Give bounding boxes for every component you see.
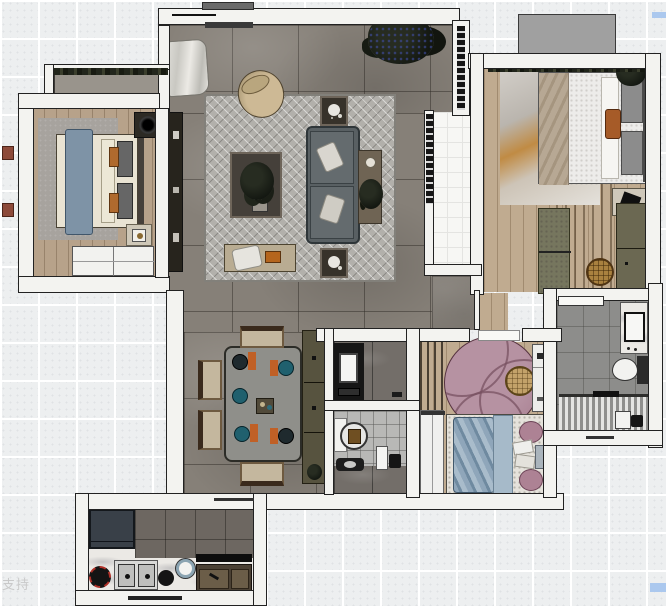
left-wall-marker-1 [2, 146, 14, 160]
highlight-bottom-right [650, 583, 666, 592]
bedroom-left-cabinet [72, 246, 154, 276]
coffee-table [230, 152, 282, 218]
side-table-bottom [320, 248, 348, 278]
bedroom-left-nightstand [126, 224, 152, 246]
wall-vestibule [474, 290, 480, 330]
mbath-shower-floor [559, 394, 648, 432]
cabinet-door [231, 569, 249, 589]
tv-console-item-1 [173, 131, 179, 139]
sink-drain [145, 574, 150, 579]
wall-bedroom-left-east [155, 108, 169, 278]
entry-door-mat [205, 22, 253, 28]
wardrobe-handle [625, 262, 628, 265]
gbath-shower-fixture [376, 442, 402, 476]
bed-left-blue-runner [65, 129, 93, 235]
dining-chair-south [240, 462, 284, 486]
side-table-flowers-top [328, 104, 340, 116]
bed-kids [446, 414, 554, 496]
wall-dining-west [166, 290, 184, 498]
napkin [270, 428, 278, 444]
dining-chair-north [240, 326, 284, 348]
shower-head [631, 415, 643, 427]
wall-bedroom-left-top [18, 93, 160, 109]
place-setting-nw [232, 352, 258, 374]
centerpiece-item [260, 402, 265, 407]
plate [234, 426, 250, 442]
wardrobe-door-line [432, 415, 433, 499]
centerpiece-item [267, 405, 272, 410]
shower-faucet-bar [593, 391, 619, 397]
bed-master-orange-pillow [605, 109, 621, 139]
tv-console-item-3 [173, 233, 179, 242]
sideboard-divider [304, 432, 325, 433]
kids-blue-drape [453, 417, 495, 493]
wall-kitchen-right [253, 493, 267, 606]
highlight-top-right [652, 12, 666, 18]
wall-block-top [316, 328, 470, 342]
nightstand-book [132, 229, 146, 242]
tv-console [168, 112, 183, 272]
kitchen-dish [176, 559, 195, 578]
wall-block-divider [324, 400, 420, 411]
bed-left [56, 134, 138, 228]
sideboard-handle [312, 356, 316, 360]
bed-master-gray-pillow-2 [621, 131, 643, 175]
shower-seat [615, 411, 631, 429]
kids-white-pillow-2 [514, 454, 536, 470]
kids-blue-runner [493, 415, 513, 497]
master-wardrobe [616, 203, 646, 293]
sofa [306, 126, 360, 244]
wall-bedroom-left-bottom [18, 276, 170, 293]
cabinet-divider [73, 261, 155, 262]
master-balcony-slab [518, 14, 616, 56]
range-hood [196, 554, 252, 562]
console-vase [365, 157, 376, 168]
wardrobe-rail [421, 411, 445, 415]
gbath-round-basin [340, 422, 368, 450]
tv-console-item-2 [173, 187, 179, 193]
wall-mbath-west [543, 288, 557, 498]
bed-master [538, 72, 646, 184]
watermark-text: 支持 [2, 574, 30, 593]
console-plant [359, 179, 383, 209]
living-east-window [457, 26, 465, 110]
wall-block-mid [406, 328, 420, 498]
mbath-vanity-counter [620, 302, 648, 354]
laundry-vanity-cabinet [334, 343, 364, 401]
place-setting-se [270, 424, 298, 448]
place-setting-w [230, 386, 256, 408]
bed-left-orange-pillow-1 [109, 147, 119, 167]
laundry-floor-item [392, 392, 402, 397]
cabinet-door [199, 569, 229, 589]
bench-book [265, 251, 281, 263]
wall-block-left [324, 328, 334, 495]
left-wall-marker-2 [2, 203, 14, 217]
wall-master-right [645, 53, 661, 297]
laundry-basin [339, 353, 358, 383]
plate [278, 360, 294, 376]
bed-left-gray-pillow-2 [117, 183, 133, 219]
wall-block-top-right [522, 328, 562, 342]
mbath-soap [627, 347, 630, 350]
refrigerator [89, 509, 135, 549]
vestibule-floor [478, 293, 508, 330]
gas-burner [89, 566, 111, 588]
side-table-top [320, 96, 348, 126]
bay-plants [54, 68, 168, 75]
napkin [270, 360, 278, 376]
sideboard-divider [304, 382, 325, 383]
cabinet-divider [113, 247, 114, 277]
wall-mbath-right [648, 283, 663, 448]
mbath-door-leaf [558, 296, 604, 306]
laundry-shelf [338, 388, 360, 396]
kitchen-floor [135, 509, 253, 558]
bench-clothes [231, 244, 263, 271]
sofa-console [358, 150, 382, 224]
napkin [248, 352, 256, 370]
place-setting-ne [270, 358, 298, 380]
kids-door-threshold [478, 330, 520, 341]
sideboard-handle [312, 406, 316, 410]
kitchen-sink [114, 560, 158, 590]
master-woven-pouf [586, 258, 614, 286]
plate [232, 388, 248, 404]
entry-door-exterior [202, 2, 254, 10]
napkin [250, 424, 258, 442]
wall-master-top [468, 53, 660, 69]
dining-chair-west-2 [198, 410, 222, 450]
cooktop-cabinet [196, 564, 252, 592]
sink-drain [125, 574, 130, 579]
kids-wardrobe [420, 410, 444, 498]
living-bench [224, 244, 296, 272]
wall-entry-top [158, 8, 460, 25]
shower-head [389, 454, 401, 468]
plate [232, 354, 248, 370]
wall-balcony-bottom [424, 264, 482, 276]
entry-curtain [164, 39, 210, 98]
mbath-toilet [612, 356, 648, 384]
master-dresser [538, 208, 570, 294]
wall-master-west [470, 53, 484, 295]
gbath-toilet [336, 458, 364, 471]
wardrobe-divider [617, 248, 647, 249]
kids-desk-blinds [420, 342, 444, 412]
kids-pouf [505, 366, 535, 396]
mbath-bottom-marker [586, 436, 614, 439]
sideboard [303, 331, 324, 483]
bed-left-headboard [138, 132, 144, 230]
bed-left-orange-pillow-2 [109, 193, 119, 213]
toilet-tank [637, 356, 648, 384]
shower-panel [376, 446, 388, 470]
dining-chair-west-1 [198, 360, 222, 400]
kids-pink-pillow-2 [519, 469, 543, 491]
plate [278, 428, 294, 444]
mbath-soap [634, 348, 637, 351]
balcony-slider-door [426, 114, 433, 204]
side-table-flowers-bottom [328, 256, 340, 268]
sink-basin-left [118, 564, 135, 587]
bed-left-gray-pillow-1 [117, 141, 133, 177]
place-setting-sw [232, 422, 258, 446]
fridge-line [91, 541, 133, 542]
mbath-sink [624, 312, 645, 342]
bed-master-throw [539, 73, 569, 185]
sideboard-plant [307, 464, 322, 480]
wall-bottom-main [75, 493, 564, 510]
book-motif [137, 233, 143, 239]
dining-table [224, 346, 302, 462]
wall-bedroom-left-outer [18, 93, 34, 293]
table-centerpiece [256, 398, 274, 414]
toilet-bowl [612, 358, 638, 381]
kitchen-window [128, 596, 182, 600]
toilet-seat [344, 461, 356, 468]
floor-plan-canvas: 支持 [0, 0, 666, 606]
basin-cabinet [348, 429, 361, 444]
coffee-table-plant [240, 162, 274, 200]
dresser-divider [539, 251, 571, 253]
entry-door-line [172, 14, 216, 16]
dining-wall-threshold [214, 498, 254, 501]
kettle [158, 570, 174, 586]
sink-basin-right [138, 564, 155, 587]
coffee-table-tray [252, 198, 268, 212]
